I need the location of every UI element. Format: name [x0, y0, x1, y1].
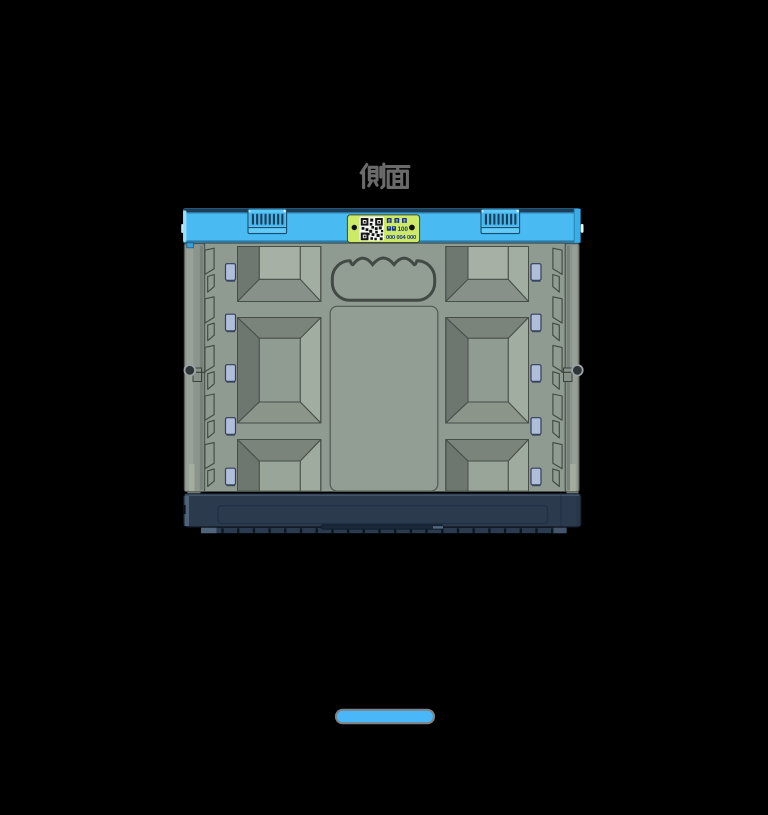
svg-text:100: 100 [398, 226, 409, 233]
svg-text:000 004 000: 000 004 000 [386, 235, 416, 241]
